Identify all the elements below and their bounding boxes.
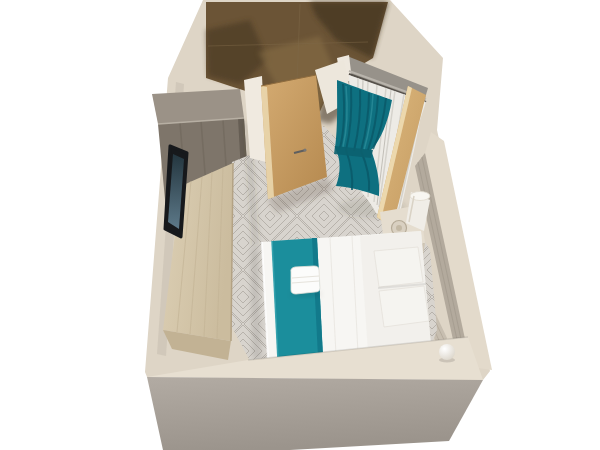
round-tray-center [396,225,402,231]
door-handle-knob [304,149,307,152]
pillow-2 [379,286,429,327]
pillow-1 [374,247,423,287]
entrance-door [261,75,327,199]
room-render [0,0,600,450]
room-render-canvas [0,0,600,450]
decor-sphere [439,344,455,360]
platform-front-face [147,377,483,450]
folded-towel [291,266,320,294]
